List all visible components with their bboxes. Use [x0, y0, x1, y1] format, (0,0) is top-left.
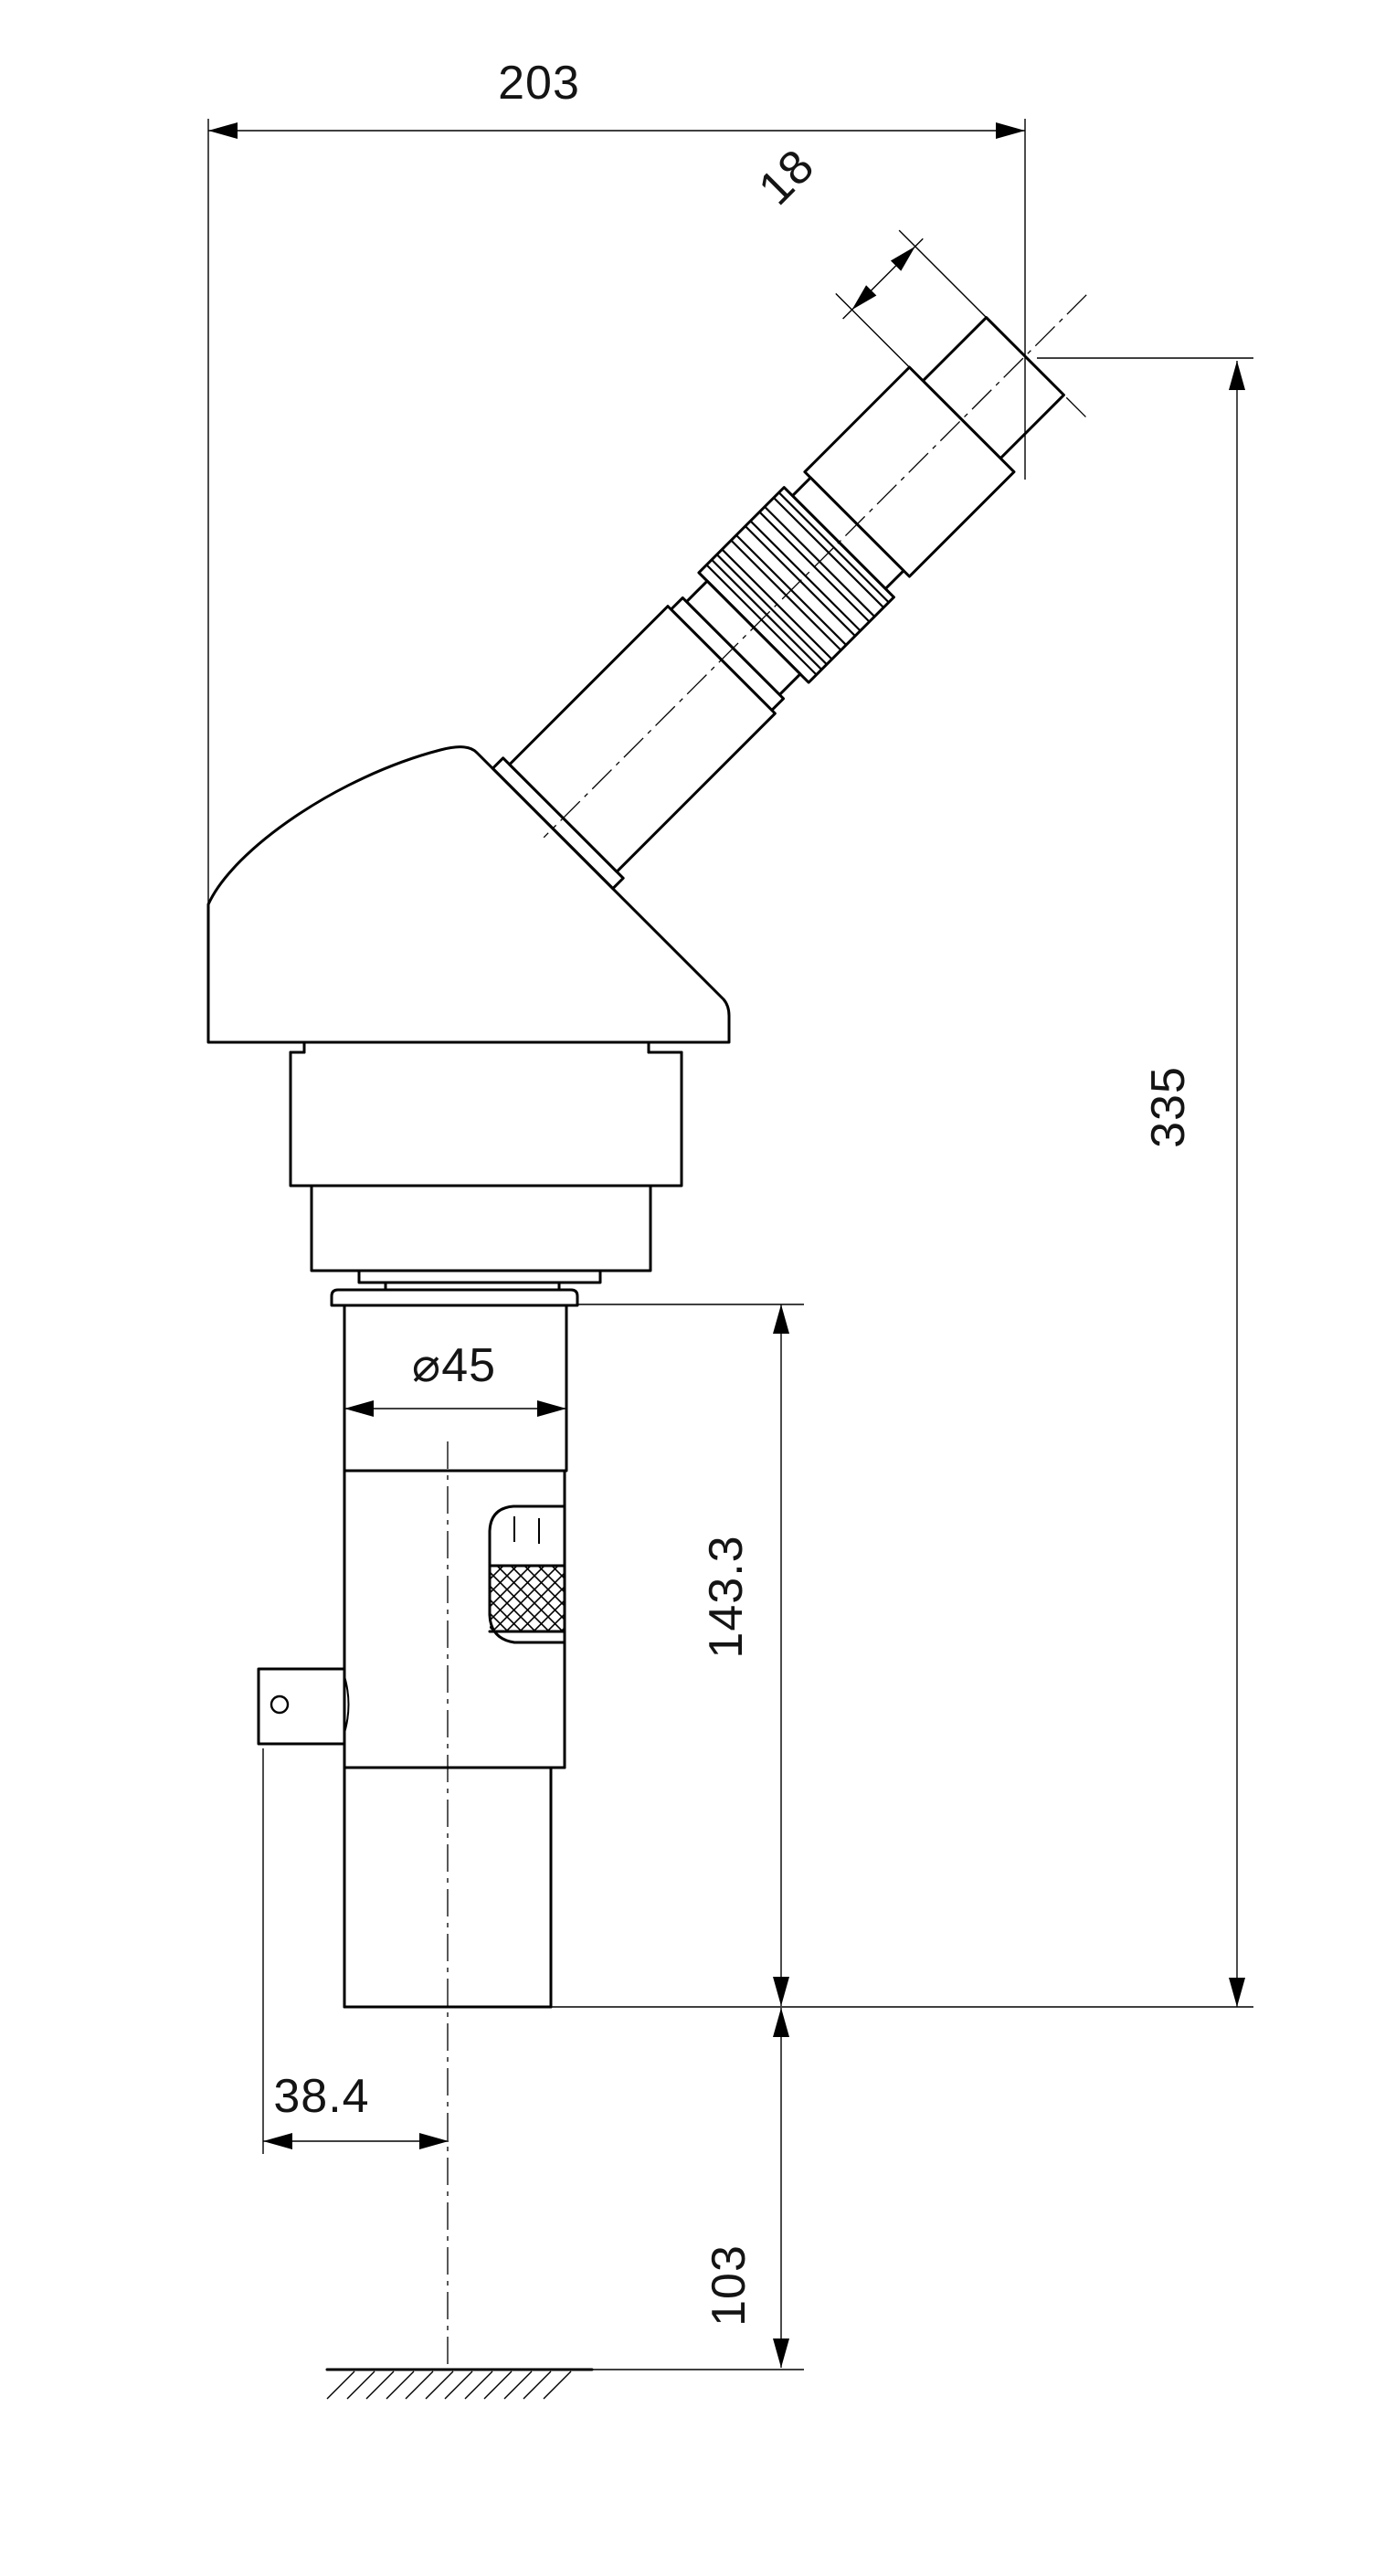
dim-body-height-value: 143.3: [700, 1535, 753, 1658]
focus-knob: [490, 1506, 565, 1642]
collar-stack: [291, 1042, 682, 1290]
dim-ground-clearance: 103: [592, 2008, 804, 2370]
dim-tube-diameter: ⌀45: [344, 1339, 566, 1417]
drawing-page: 18: [0, 0, 1385, 2576]
dim-body-height: 143.3: [577, 1304, 804, 2006]
dim-overall-height-value: 335: [1142, 1066, 1195, 1148]
technical-drawing-canvas: 18: [0, 0, 1385, 2576]
dim-eyepiece-length-value: 18: [748, 139, 824, 215]
knob-crosshatch: [490, 1566, 565, 1631]
dim-axis-offset: 38.4: [263, 1748, 449, 2154]
ground-hatching: [327, 2371, 571, 2399]
dim-overall-height: 335: [1037, 358, 1253, 2007]
dim-axis-offset-value: 38.4: [273, 2070, 369, 2123]
dim-ground-clearance-value: 103: [703, 2244, 756, 2327]
dim-total-width-value: 203: [498, 57, 580, 110]
tube-flange: [332, 1290, 577, 1305]
dim-tube-diameter-value: ⌀45: [412, 1339, 496, 1392]
side-bracket: [259, 1669, 349, 1744]
ground-symbol: [327, 2370, 592, 2399]
centerline-eyepiece-axis: [544, 295, 1086, 838]
